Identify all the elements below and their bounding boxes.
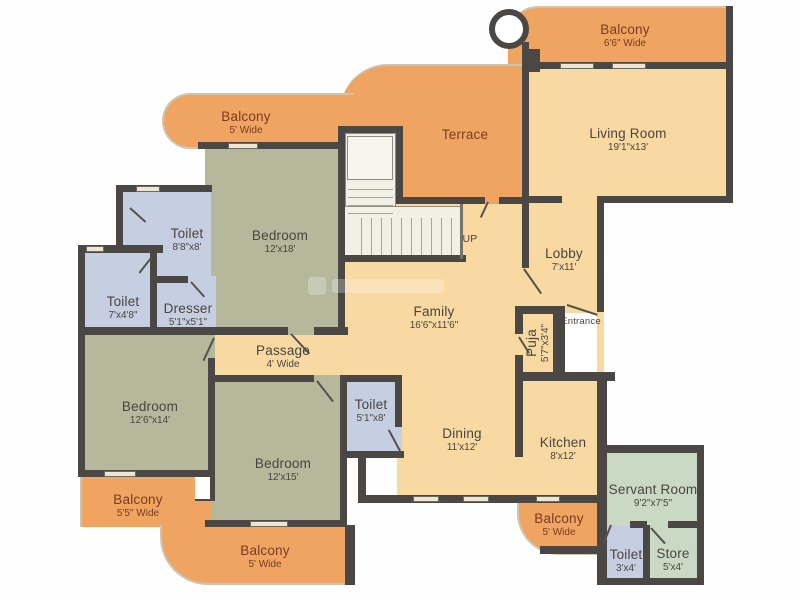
label-family: Family16'6"x11'6" <box>410 304 459 332</box>
wall <box>597 196 604 312</box>
label-living-room: Living Room19'1"x13' <box>589 126 666 154</box>
label-servant-room: Servant Room9'2"x7'5" <box>609 482 698 510</box>
wall <box>600 578 704 585</box>
wall <box>515 377 523 457</box>
label-balcony-top-right: Balcony6'6" Wide <box>600 22 649 50</box>
stair-edge <box>460 204 463 259</box>
window <box>612 63 646 69</box>
wall <box>78 470 215 477</box>
wall <box>338 126 345 334</box>
window <box>536 496 560 502</box>
stair-treads <box>348 182 393 214</box>
wall <box>340 375 347 458</box>
wall <box>540 546 607 554</box>
label-bedroom-left: Bedroom12'6"x14' <box>122 399 178 427</box>
label-puja: Puja5'7"x3'4" <box>524 324 552 362</box>
wall <box>668 521 704 528</box>
label-lobby: Lobby7'x11' <box>545 246 583 274</box>
window <box>560 63 594 69</box>
wall <box>78 334 85 477</box>
wall <box>515 314 523 334</box>
stairs-landing <box>347 136 393 180</box>
wall <box>697 445 704 585</box>
label-dining: Dining11'x12' <box>442 426 481 454</box>
label-balcony-bottom-left: Balcony5'5" Wide <box>113 492 162 520</box>
label-bedroom-top: Bedroom12'x18' <box>252 228 308 256</box>
label-store: Store5'x4' <box>656 546 689 574</box>
label-up: UP <box>463 233 478 245</box>
label-entrance: Entrance <box>561 316 601 327</box>
window <box>104 471 136 477</box>
watermark <box>332 279 444 293</box>
wall <box>499 197 528 204</box>
wall <box>643 525 650 583</box>
wall <box>340 451 404 458</box>
wall <box>338 255 466 262</box>
window <box>86 246 104 252</box>
wall <box>78 245 85 334</box>
window <box>136 186 160 192</box>
wall <box>198 142 345 149</box>
label-bedroom-bottom: Bedroom12'x15' <box>255 456 311 484</box>
window <box>413 496 439 502</box>
wall <box>515 355 523 377</box>
window <box>228 143 258 149</box>
wall <box>358 495 523 503</box>
floor-plan: Balcony6'6" Wide Living Room19'1"x13' Te… <box>0 0 800 598</box>
wall <box>522 42 529 203</box>
label-dresser: Dresser5'1"x5'1" <box>164 301 213 329</box>
label-toilet-mid: Toilet5'1"x8' <box>355 397 388 425</box>
wall <box>522 196 529 268</box>
wall <box>345 525 355 585</box>
label-kitchen: Kitchen8'x12' <box>540 435 586 463</box>
label-toilet-top: Toilet8'8"x8' <box>171 226 204 254</box>
wall <box>340 451 347 527</box>
wall <box>597 196 733 203</box>
label-passage: Passage4' Wide <box>256 343 310 371</box>
label-terrace: Terrace <box>442 127 488 143</box>
wall <box>338 126 403 133</box>
wall <box>340 375 402 382</box>
label-toilet-left: Toilet7'x4'8" <box>107 294 140 322</box>
label-balcony-bottom-mid: Balcony5' Wide <box>534 511 583 539</box>
stair-treads <box>352 218 460 256</box>
label-balcony-top-left: Balcony5' Wide <box>221 109 270 137</box>
room-bedroom-bottom <box>211 375 347 527</box>
wall <box>150 276 188 283</box>
balcony-recess <box>195 477 215 501</box>
wall <box>600 445 704 453</box>
wall <box>630 521 647 528</box>
wall <box>314 327 348 335</box>
window <box>463 496 489 502</box>
wall <box>397 197 485 204</box>
label-balcony-bottom: Balcony5' Wide <box>240 543 289 571</box>
wall <box>395 375 402 427</box>
wall <box>150 252 157 335</box>
wall <box>208 375 314 382</box>
wall <box>726 6 733 203</box>
label-toilet-servant: Toilet3'x4' <box>610 547 643 575</box>
window <box>250 521 288 527</box>
wall <box>396 126 403 204</box>
watermark <box>308 277 326 295</box>
wall <box>116 185 123 252</box>
wall <box>116 185 212 192</box>
